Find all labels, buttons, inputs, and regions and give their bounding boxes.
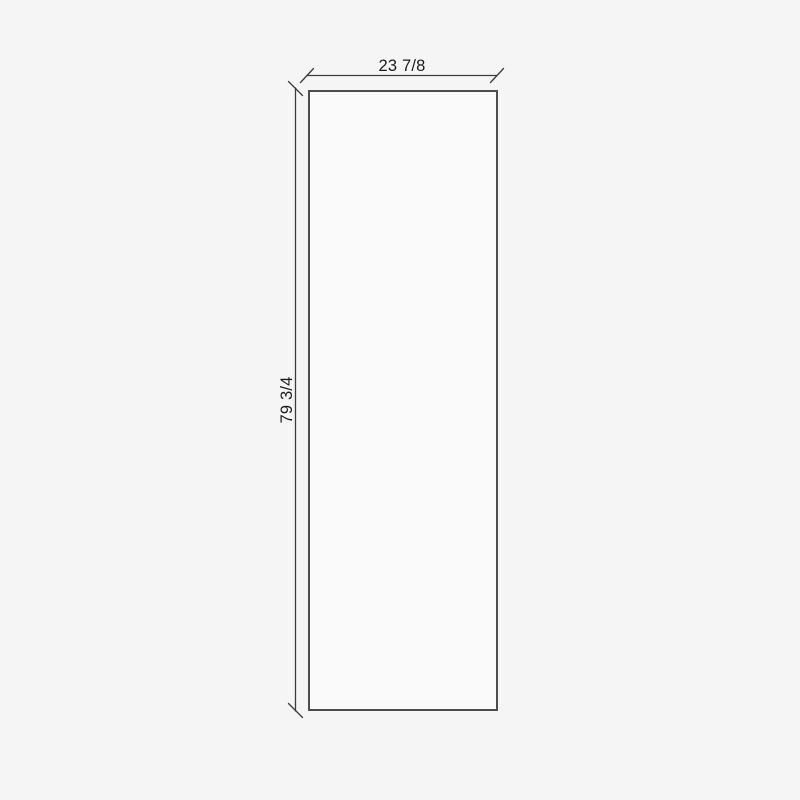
height-dimension-label: 79 3/4 <box>278 376 296 423</box>
panel-outline <box>309 91 497 710</box>
width-dimension-label: 23 7/8 <box>378 57 425 75</box>
panel-dimension-drawing: 23 7/8 79 3/4 <box>0 0 800 800</box>
height-dimension: 79 3/4 <box>278 82 303 718</box>
width-dimension: 23 7/8 <box>301 57 504 83</box>
drawing-canvas: 23 7/8 79 3/4 <box>0 0 800 800</box>
